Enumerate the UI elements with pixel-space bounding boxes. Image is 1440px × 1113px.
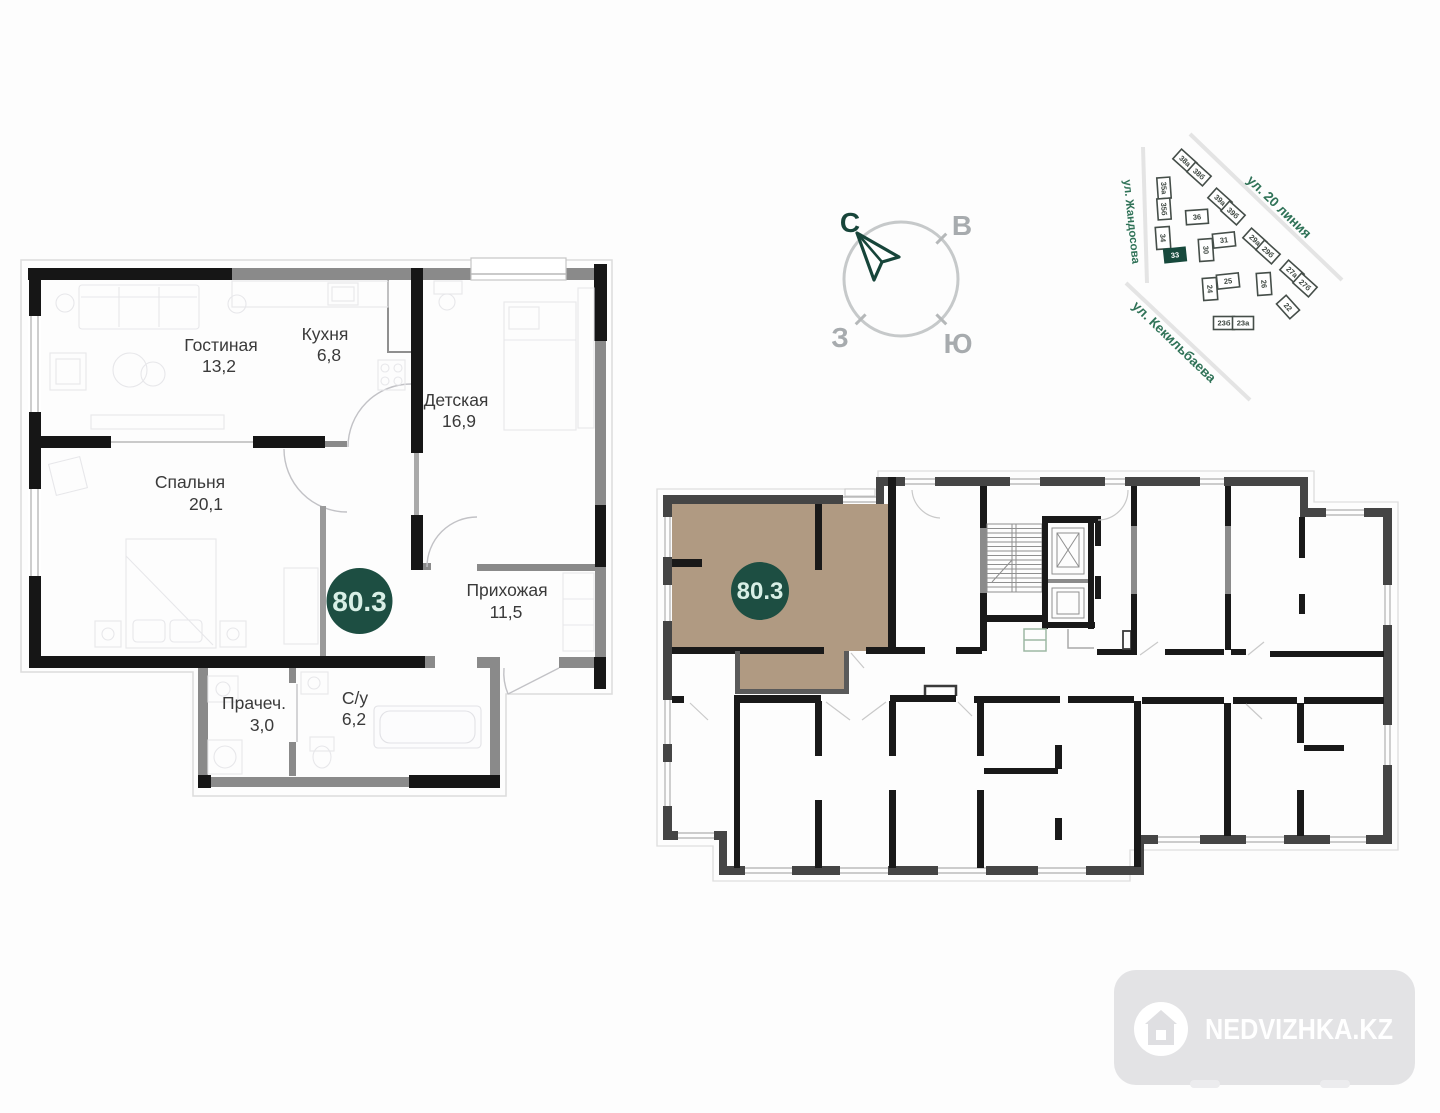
- svg-text:13,2: 13,2: [202, 356, 236, 376]
- svg-text:Спальня: Спальня: [155, 472, 225, 492]
- svg-text:Детская: Детская: [424, 390, 489, 410]
- svg-text:ул. Кекильбаева: ул. Кекильбаева: [1129, 298, 1219, 386]
- svg-text:Ю: Ю: [944, 328, 973, 359]
- svg-text:С/у: С/у: [342, 688, 369, 708]
- svg-text:NEDVIZHKA.KZ: NEDVIZHKA.KZ: [1205, 1014, 1393, 1046]
- svg-text:25: 25: [1223, 276, 1232, 286]
- svg-text:26: 26: [1259, 280, 1269, 289]
- svg-text:Прачеч.: Прачеч.: [222, 693, 286, 713]
- svg-text:24: 24: [1205, 285, 1215, 295]
- svg-text:3,0: 3,0: [250, 715, 275, 735]
- svg-text:23а: 23а: [1237, 319, 1250, 328]
- svg-text:16,9: 16,9: [442, 411, 476, 431]
- svg-text:6,8: 6,8: [317, 345, 341, 365]
- svg-text:35а: 35а: [1159, 181, 1169, 195]
- svg-text:20,1: 20,1: [189, 494, 223, 514]
- svg-text:ул. Жандосова: ул. Жандосова: [1121, 179, 1142, 265]
- svg-text:Гостиная: Гостиная: [184, 335, 257, 355]
- svg-text:35б: 35б: [1159, 202, 1169, 216]
- svg-text:6,2: 6,2: [342, 709, 366, 729]
- svg-text:Кухня: Кухня: [302, 324, 349, 344]
- svg-text:11,5: 11,5: [490, 602, 523, 622]
- svg-text:80.3: 80.3: [332, 586, 387, 617]
- svg-text:33: 33: [1170, 250, 1179, 260]
- svg-text:36: 36: [1193, 212, 1202, 222]
- svg-text:В: В: [952, 210, 972, 241]
- svg-text:80.3: 80.3: [737, 578, 784, 605]
- svg-text:З: З: [831, 322, 849, 353]
- svg-text:23б: 23б: [1218, 319, 1231, 328]
- svg-text:Прихожая: Прихожая: [466, 580, 547, 600]
- svg-text:31: 31: [1219, 235, 1228, 245]
- svg-text:34: 34: [1158, 234, 1168, 244]
- svg-text:30: 30: [1201, 246, 1211, 255]
